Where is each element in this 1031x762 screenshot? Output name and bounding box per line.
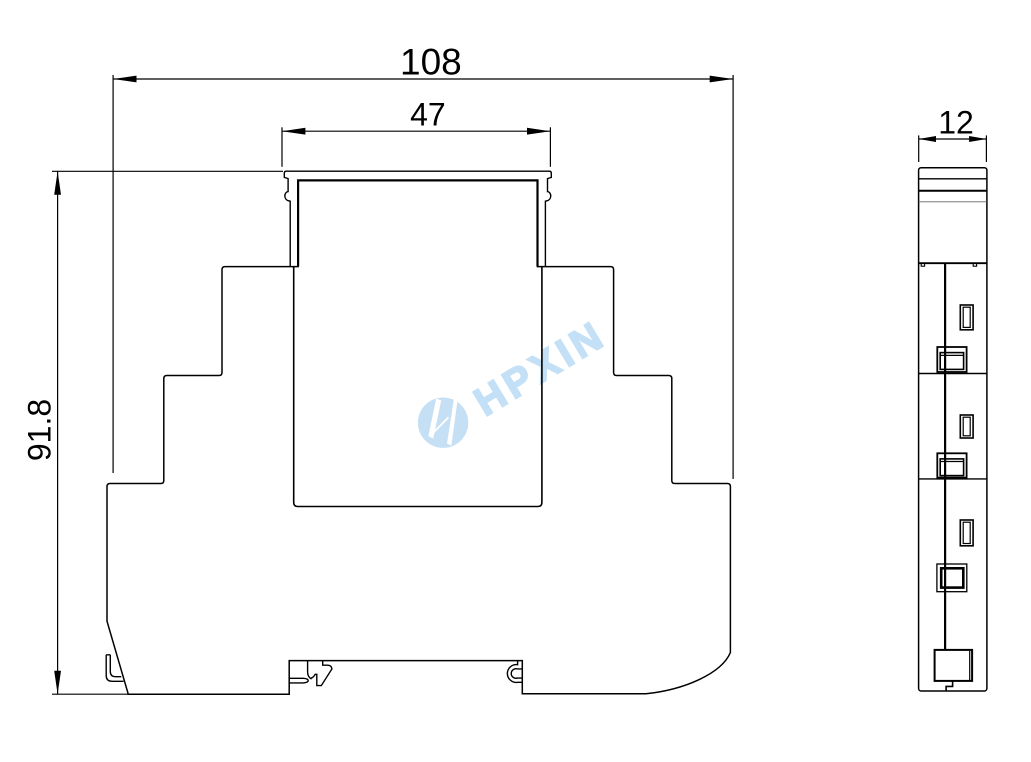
svg-text:12: 12 xyxy=(938,105,974,141)
svg-text:HPXIN: HPXIN xyxy=(467,312,614,424)
svg-text:47: 47 xyxy=(410,97,446,133)
svg-text:91.8: 91.8 xyxy=(22,399,58,461)
svg-text:108: 108 xyxy=(400,42,462,83)
